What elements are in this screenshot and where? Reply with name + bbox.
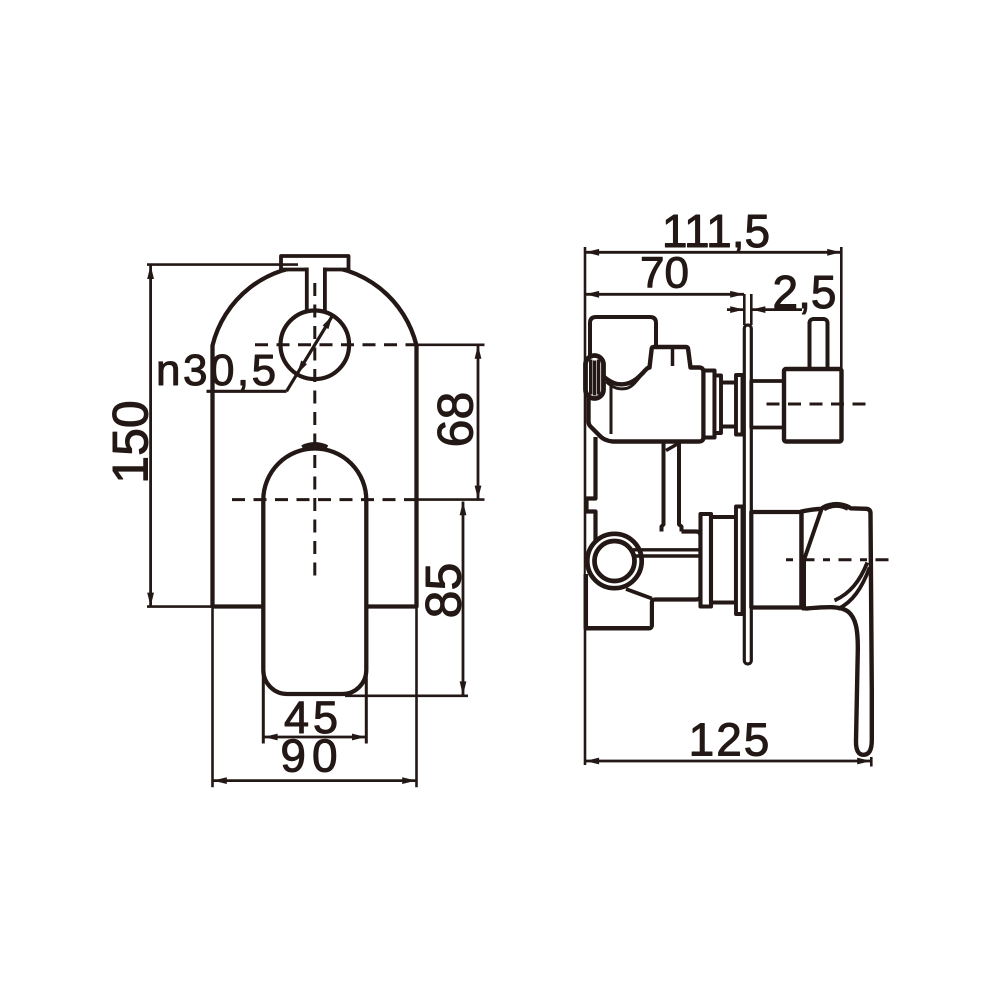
svg-text:70: 70 — [640, 249, 689, 298]
svg-text:n30,5: n30,5 — [156, 346, 279, 395]
svg-text:125: 125 — [689, 714, 772, 766]
svg-text:85: 85 — [416, 563, 472, 619]
svg-text:2,5: 2,5 — [773, 266, 837, 318]
svg-text:150: 150 — [103, 400, 159, 483]
svg-text:90: 90 — [280, 730, 343, 782]
svg-text:68: 68 — [428, 392, 484, 448]
